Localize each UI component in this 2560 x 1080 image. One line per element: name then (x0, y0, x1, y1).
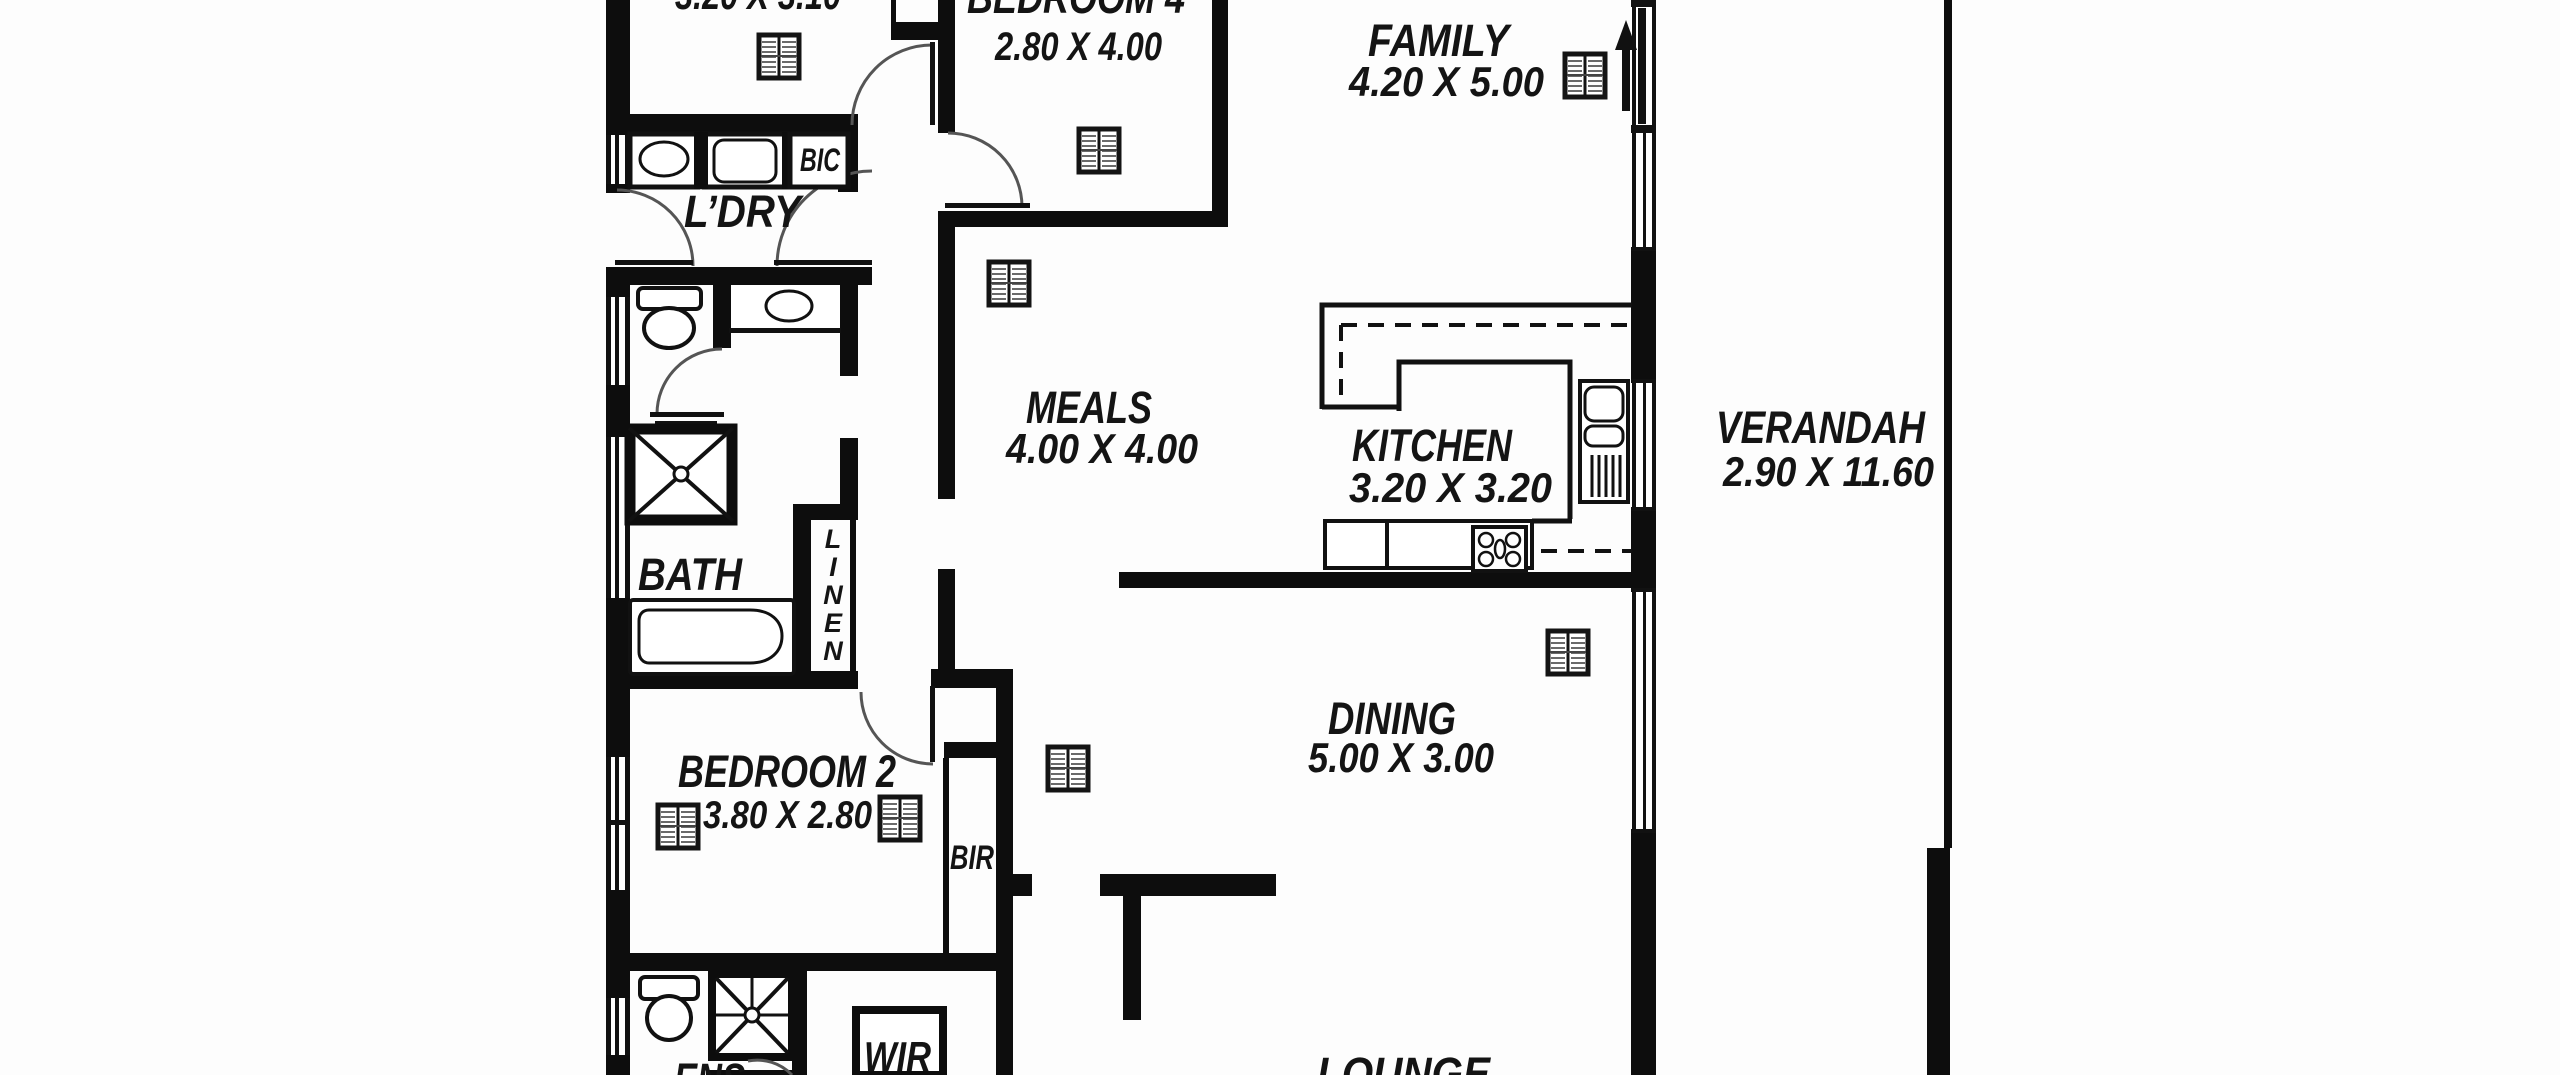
svg-text:4.00 X 4.00: 4.00 X 4.00 (1005, 425, 1198, 472)
svg-text:L’DRY: L’DRY (684, 186, 805, 237)
svg-text:N: N (823, 580, 843, 610)
svg-text:4.20 X 5.00: 4.20 X 5.00 (1348, 58, 1544, 105)
svg-text:BEDROOM 2: BEDROOM 2 (678, 746, 896, 797)
svg-text:BEDROOM 4: BEDROOM 4 (967, 0, 1185, 23)
svg-text:3.20 X 3.10: 3.20 X 3.10 (675, 0, 841, 18)
svg-text:2.80 X 4.00: 2.80 X 4.00 (994, 25, 1162, 69)
svg-text:I: I (829, 552, 837, 582)
svg-text:E: E (824, 608, 843, 638)
svg-text:ENS: ENS (674, 1054, 745, 1075)
svg-text:5.00 X 3.00: 5.00 X 3.00 (1308, 734, 1494, 781)
svg-text:3.20 X 3.20: 3.20 X 3.20 (1349, 464, 1552, 511)
svg-text:BIR: BIR (950, 839, 994, 877)
svg-text:N: N (823, 636, 843, 666)
svg-text:3.80 X 2.80: 3.80 X 2.80 (703, 794, 872, 837)
svg-text:BATH: BATH (638, 549, 743, 600)
svg-text:VERANDAH: VERANDAH (1716, 402, 1926, 453)
svg-text:WIR: WIR (864, 1033, 932, 1075)
svg-text:BIC: BIC (800, 142, 841, 178)
svg-text:LOUNGE: LOUNGE (1317, 1048, 1492, 1075)
svg-text:2.90 X 11.60: 2.90 X 11.60 (1722, 448, 1934, 495)
svg-text:L: L (825, 524, 842, 554)
